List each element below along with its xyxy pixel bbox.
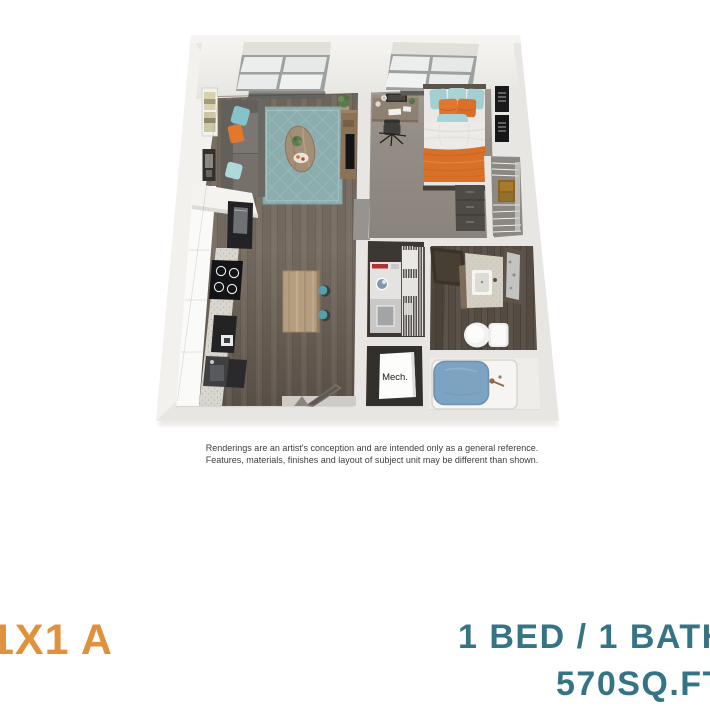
svg-text:Mech.: Mech. (382, 372, 408, 383)
